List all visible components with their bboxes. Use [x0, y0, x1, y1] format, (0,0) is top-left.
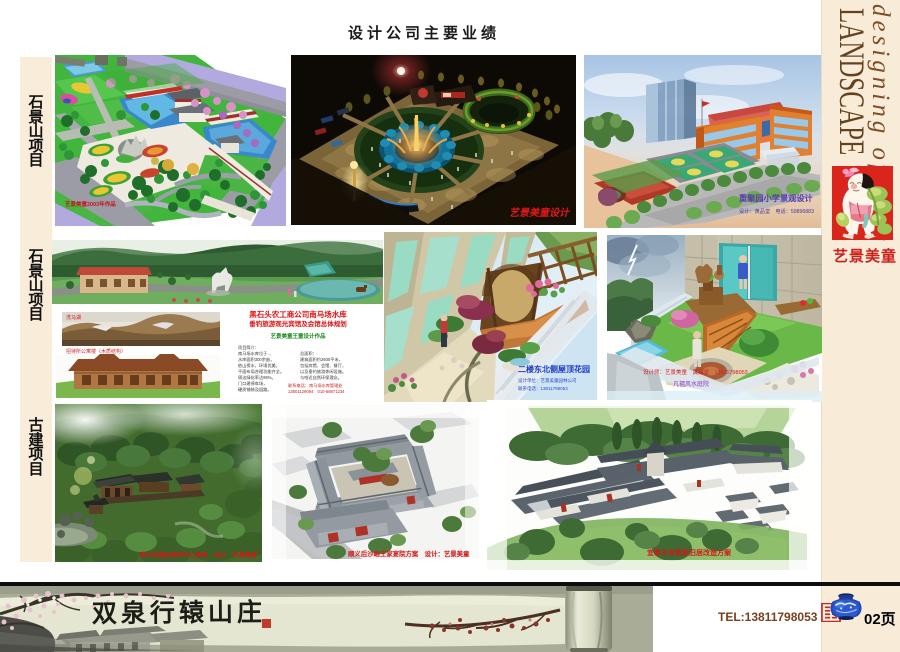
svg-text:洗马湖: 洗马湖	[66, 314, 81, 321]
svg-text:二楼东北侧屋顶花园: 二楼东北侧屋顶花园	[518, 364, 590, 374]
svg-text:联系电话：南马场水库管理处: 联系电话：南马场水库管理处	[288, 382, 343, 389]
svg-text:南方某酒店接待中心景观 设计：艺景美童: 南方某酒店接待中心景观 设计：艺景美童	[139, 551, 257, 559]
svg-text:招待所公寓楼（木质结构）: 招待所公寓楼（木质结构）	[66, 348, 126, 355]
svg-text:包括宾馆、会馆、餐厅，: 包括宾馆、会馆、餐厅，	[300, 362, 346, 369]
svg-text:设计：黄品堂 电话：59896883: 设计：黄品堂 电话：59896883	[739, 207, 814, 215]
svg-text:艺景美童王童设计作品: 艺景美童王童设计作品	[270, 332, 326, 340]
svg-text:联系电话：13811798053: 联系电话：13811798053	[518, 385, 568, 392]
svg-text:顺义后沙峪王家宴院方案 设计：艺景美童: 顺义后沙峪王家宴院方案 设计：艺景美童	[348, 549, 470, 558]
svg-text:平面布局合理功能齐全。: 平面布局合理功能齐全。	[238, 368, 284, 375]
svg-text:设计单位：艺景美童园林公司: 设计单位：艺景美童园林公司	[518, 377, 577, 384]
svg-text:南马场水库位于…: 南马场水库位于…	[238, 350, 272, 357]
svg-text:门口建停车场，: 门口建停车场，	[238, 380, 267, 387]
svg-text:设计师：艺景美童 黄品堂 13811798053: 设计师：艺景美童 黄品堂 13811798053	[643, 368, 748, 376]
svg-text:双泉行辕山庄: 双泉行辕山庄	[92, 597, 266, 628]
svg-text:艺景美童2003年作品: 艺景美童2003年作品	[65, 200, 116, 208]
svg-text:与哈近自然环保理念。: 与哈近自然环保理念。	[300, 374, 342, 381]
svg-text:重聚园小学景观设计: 重聚园小学景观设计	[739, 193, 814, 203]
svg-text:项目简介：: 项目简介：	[238, 344, 259, 351]
svg-text:水库面积300余亩，: 水库面积300余亩，	[238, 356, 274, 363]
svg-text:建筑面积约2600平米，: 建筑面积约2600平米，	[300, 356, 343, 363]
svg-text:硬质铺装及园路。: 硬质铺装及园路。	[238, 386, 272, 393]
svg-text:依山傍水，环境优美，: 依山傍水，环境优美，	[238, 362, 280, 369]
svg-text:黑石头农工商公司南马场水库: 黑石头农工商公司南马场水库	[249, 309, 347, 319]
svg-text:宜春天官黄家旧居改造方案: 宜春天官黄家旧居改造方案	[647, 548, 732, 557]
svg-text:垂钓旅游观光宾馆及会馆总体规划: 垂钓旅游观光宾馆及会馆总体规划	[249, 319, 347, 328]
svg-text:总面积：: 总面积：	[300, 350, 317, 357]
svg-text:13801129094 010-68871234: 13801129094 010-68871234	[288, 389, 345, 394]
svg-text:凡褔风水庭院: 凡褔风水庭院	[673, 380, 709, 388]
svg-text:以及垂钓旅游休闲设施。: 以及垂钓旅游休闲设施。	[300, 368, 346, 375]
svg-text:周边绿化率达95%。: 周边绿化率达95%。	[238, 374, 276, 381]
svg-text:艺景美童设计: 艺景美童设计	[509, 207, 571, 219]
